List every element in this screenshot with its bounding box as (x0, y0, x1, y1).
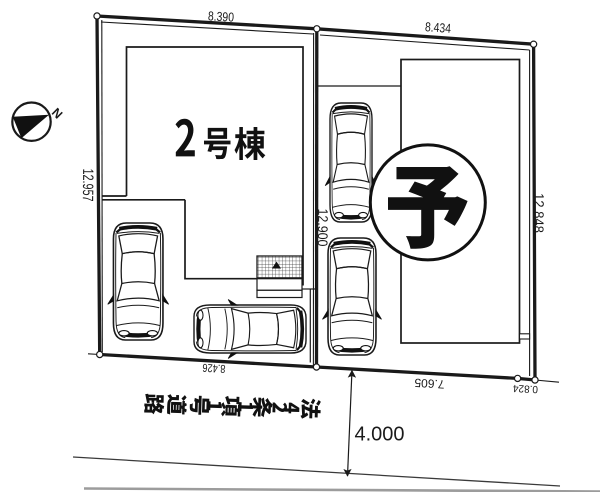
svg-text:4.000: 4.000 (355, 424, 405, 446)
svg-text:7.605: 7.605 (414, 376, 445, 392)
svg-text:8.434: 8.434 (425, 19, 452, 36)
svg-text:12.900: 12.900 (315, 208, 331, 246)
svg-text:12.848: 12.848 (531, 193, 547, 233)
svg-text:8.426: 8.426 (202, 361, 226, 374)
svg-text:8.390: 8.390 (208, 8, 235, 24)
svg-text:12.957: 12.957 (79, 168, 96, 201)
svg-text:0.824: 0.824 (513, 382, 539, 395)
